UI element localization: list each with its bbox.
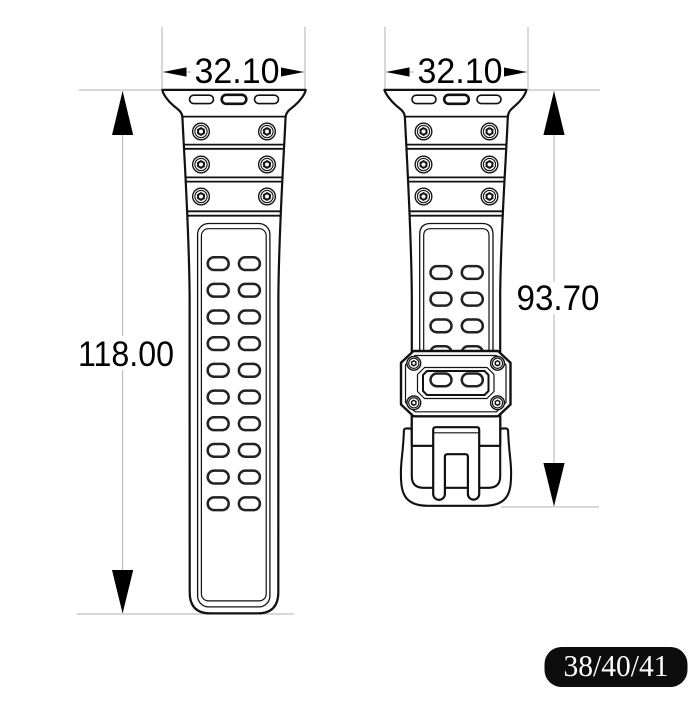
svg-text:93.70: 93.70 [517, 279, 600, 318]
svg-text:38/40/41: 38/40/41 [564, 648, 669, 683]
svg-text:32.10: 32.10 [195, 52, 280, 91]
svg-text:118.00: 118.00 [78, 335, 174, 374]
svg-text:32.10: 32.10 [418, 52, 503, 91]
